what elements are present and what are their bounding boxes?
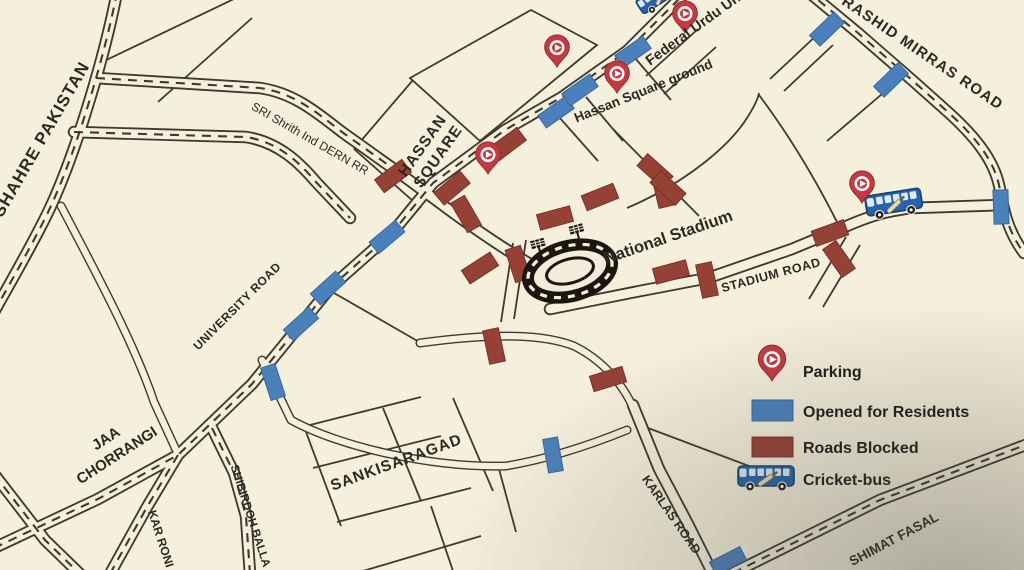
legend-blocked-swatch [752,437,793,457]
resident-marker [993,190,1009,225]
legend-opened-label: Opened for Residents [803,404,969,421]
map-canvas: SHAHRE PAKISTAN SRI Shrith Ind DERN RR H… [0,0,1024,570]
stadium-area-map: SHAHRE PAKISTAN SRI Shrith Ind DERN RR H… [0,0,1024,570]
legend-cricket-bus-label: Cricket-bus [803,472,891,489]
legend-blocked-label: Roads Blocked [803,440,919,457]
legend-opened-swatch [752,400,793,421]
legend-parking-label: Parking [803,364,862,381]
